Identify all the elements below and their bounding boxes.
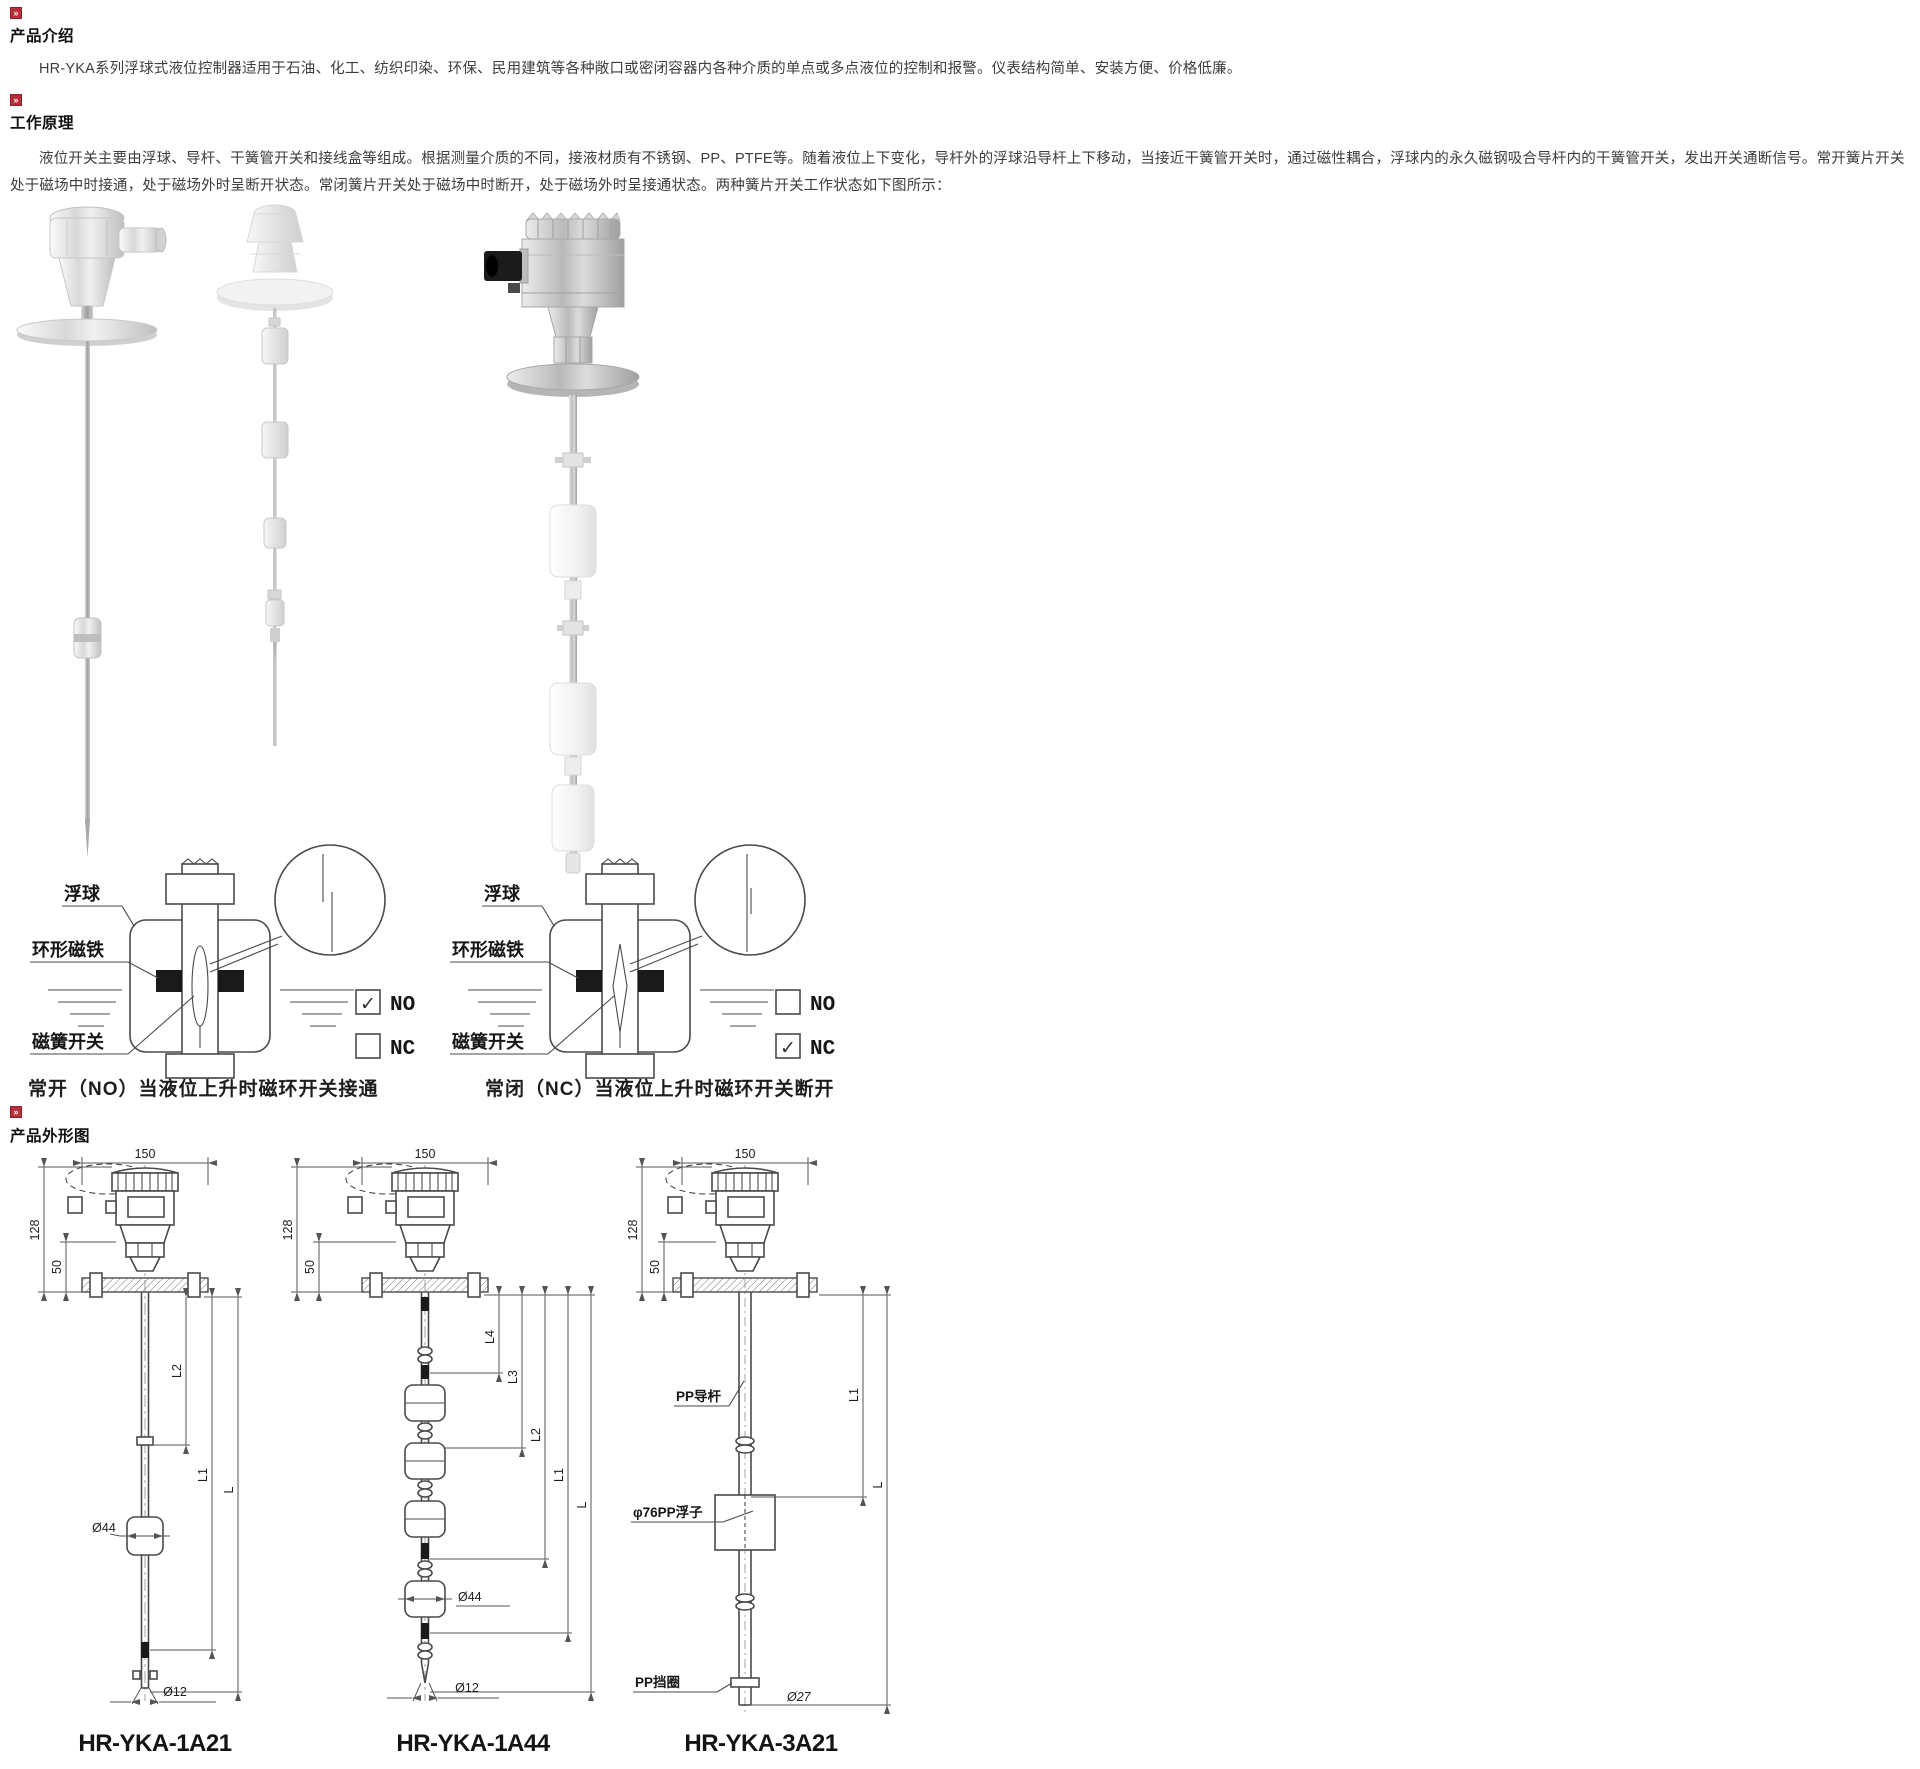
- stop-ring: [269, 318, 280, 326]
- ring-magnet-label: 环形磁铁: [32, 939, 104, 960]
- anchor-icon[interactable]: »: [10, 94, 22, 106]
- guide-rod: [418, 1292, 432, 1683]
- dim-rod-dia: Ø12: [163, 1685, 187, 1699]
- dim-150: 150: [735, 1147, 756, 1161]
- sensor-flange: [507, 364, 639, 397]
- mounting-flange: [362, 1273, 488, 1297]
- ring-magnet-label: 环形磁铁: [452, 939, 524, 960]
- pp-retaining-ring: [731, 1678, 759, 1687]
- float-cutaway: [130, 859, 270, 1078]
- float-label: 浮球: [484, 883, 521, 904]
- pp-rod-label: PP导杆: [676, 1388, 722, 1404]
- pp-ring-label: PP挡圈: [635, 1674, 680, 1690]
- model-label-1a21: HR-YKA-1A21: [45, 1730, 265, 1758]
- principle-paragraph: 液位开关主要由浮球、导杆、干簧管开关和接线盒等组成。根据测量介质的不同，接液材质…: [10, 146, 1912, 200]
- pp-float: [550, 683, 596, 755]
- ring-magnet-left: [156, 970, 182, 992]
- no-nc-checkboxes: NO ✓ NC: [776, 990, 836, 1061]
- dim-l1: L1: [196, 1468, 210, 1482]
- product-photo-single-float-sensor: [15, 200, 185, 865]
- model-label-3a21: HR-YKA-3A21: [651, 1730, 871, 1758]
- float-balls: [398, 1385, 452, 1617]
- magnet-stop: [141, 1642, 149, 1658]
- sensor-head: [247, 205, 303, 272]
- stop-ring: [268, 590, 281, 599]
- pp-float-label: φ76PP浮子: [633, 1504, 703, 1520]
- product-photo-multi-float-sensor: [210, 200, 340, 860]
- conduit: [508, 283, 520, 293]
- section-heading-principle: 工作原理: [10, 111, 74, 133]
- outline-drawing-3a21: PP导杆 φ76PP浮子 PP挡圈 150 128 50 L1 L Ø27: [545, 1145, 905, 1725]
- checkbox-no-check: ✓: [360, 994, 376, 1015]
- mounting-flange: [82, 1273, 208, 1297]
- pp-float: [550, 505, 596, 577]
- anchor-icon[interactable]: »: [10, 1106, 22, 1118]
- head-assembly: [66, 1164, 178, 1271]
- dim-150: 150: [135, 1147, 156, 1161]
- checkbox-nc: [356, 1034, 380, 1058]
- checkbox-no-label: NO: [390, 994, 415, 1017]
- checkbox-no: [776, 990, 800, 1014]
- ring-magnet-right: [638, 970, 664, 992]
- float-ball: [264, 518, 286, 548]
- principle-diagram-no: 浮球 环形磁铁 磁簧开关 ✓ NO NC: [20, 840, 430, 1078]
- no-nc-checkboxes: ✓ NO NC: [356, 990, 416, 1061]
- stop-ring: [137, 1437, 153, 1445]
- dim-128: 128: [281, 1220, 295, 1241]
- section-heading-intro: 产品介绍: [10, 24, 74, 46]
- dim-rod-dia: Ø12: [455, 1681, 479, 1695]
- sensor-head: [50, 207, 166, 324]
- dim-l4: L4: [483, 1330, 497, 1344]
- head-assembly: [666, 1164, 778, 1271]
- dust-cap: [668, 1197, 682, 1213]
- valve-fitting: [565, 757, 581, 775]
- dim-l1: L1: [847, 1388, 861, 1402]
- intro-paragraph: HR-YKA系列浮球式液位控制器适用于石油、化工、纺织印染、环保、民用建筑等各种…: [10, 56, 1912, 83]
- float-cutaway: [550, 859, 690, 1078]
- diagram-caption-nc: 常闭（NC）当液位上升时磁环开关断开: [485, 1074, 834, 1101]
- dim-128: 128: [28, 1220, 42, 1241]
- checkbox-nc-label: NC: [810, 1038, 836, 1061]
- junction-box-head: [484, 213, 624, 363]
- dim-float-dia: Ø44: [92, 1521, 116, 1535]
- float-ball: [74, 618, 101, 658]
- reed-switch-label: 磁簧开关: [32, 1031, 104, 1052]
- dust-cap: [68, 1197, 82, 1213]
- guide-rod: [85, 341, 90, 819]
- dim-150: 150: [415, 1147, 436, 1161]
- dim-50: 50: [303, 1260, 317, 1274]
- checkbox-nc-label: NC: [390, 1038, 416, 1061]
- checkbox-no-label: NO: [810, 994, 835, 1017]
- model-label-1a44: HR-YKA-1A44: [363, 1730, 583, 1758]
- dim-l2: L2: [529, 1428, 543, 1442]
- anchor-icon[interactable]: »: [10, 7, 22, 19]
- float-label: 浮球: [64, 883, 101, 904]
- pp-float: [715, 1495, 775, 1550]
- dim-l2: L2: [170, 1364, 184, 1378]
- dim-float-dia: Ø44: [458, 1590, 482, 1604]
- ring-magnet-right: [218, 970, 244, 992]
- checkbox-nc-check: ✓: [780, 1038, 796, 1059]
- head-assembly: [346, 1164, 458, 1271]
- lower-fitting: [266, 600, 284, 626]
- section-heading-outline: 产品外形图: [10, 1124, 90, 1146]
- sensor-flange: [217, 279, 333, 311]
- valve-fitting: [555, 453, 591, 467]
- principle-diagram-nc: 浮球 环形磁铁 磁簧开关 NO ✓ NC: [440, 840, 850, 1078]
- float-ball: [262, 328, 288, 364]
- product-photo-pp-float-sensor: [478, 205, 643, 875]
- dim-l3: L3: [506, 1370, 520, 1384]
- float-ball: [262, 422, 288, 458]
- outline-drawing-1a21: 150 128 50 L2 L1 L Ø44 Ø12: [20, 1145, 270, 1725]
- ring-magnet-left: [576, 970, 602, 992]
- dim-l: L: [222, 1486, 236, 1493]
- diagram-caption-no: 常开（NO）当液位上升时磁环开关接通: [28, 1074, 379, 1101]
- float-ball: [120, 1517, 170, 1555]
- reed-switch-label: 磁簧开关: [452, 1031, 524, 1052]
- lower-collar: [270, 628, 280, 642]
- dust-cap: [348, 1197, 362, 1213]
- dim-50: 50: [648, 1260, 662, 1274]
- dim-50: 50: [50, 1260, 64, 1274]
- dim-l: L: [871, 1481, 885, 1488]
- dim-128: 128: [626, 1220, 640, 1241]
- dim-rod-dia: Ø27: [786, 1690, 812, 1704]
